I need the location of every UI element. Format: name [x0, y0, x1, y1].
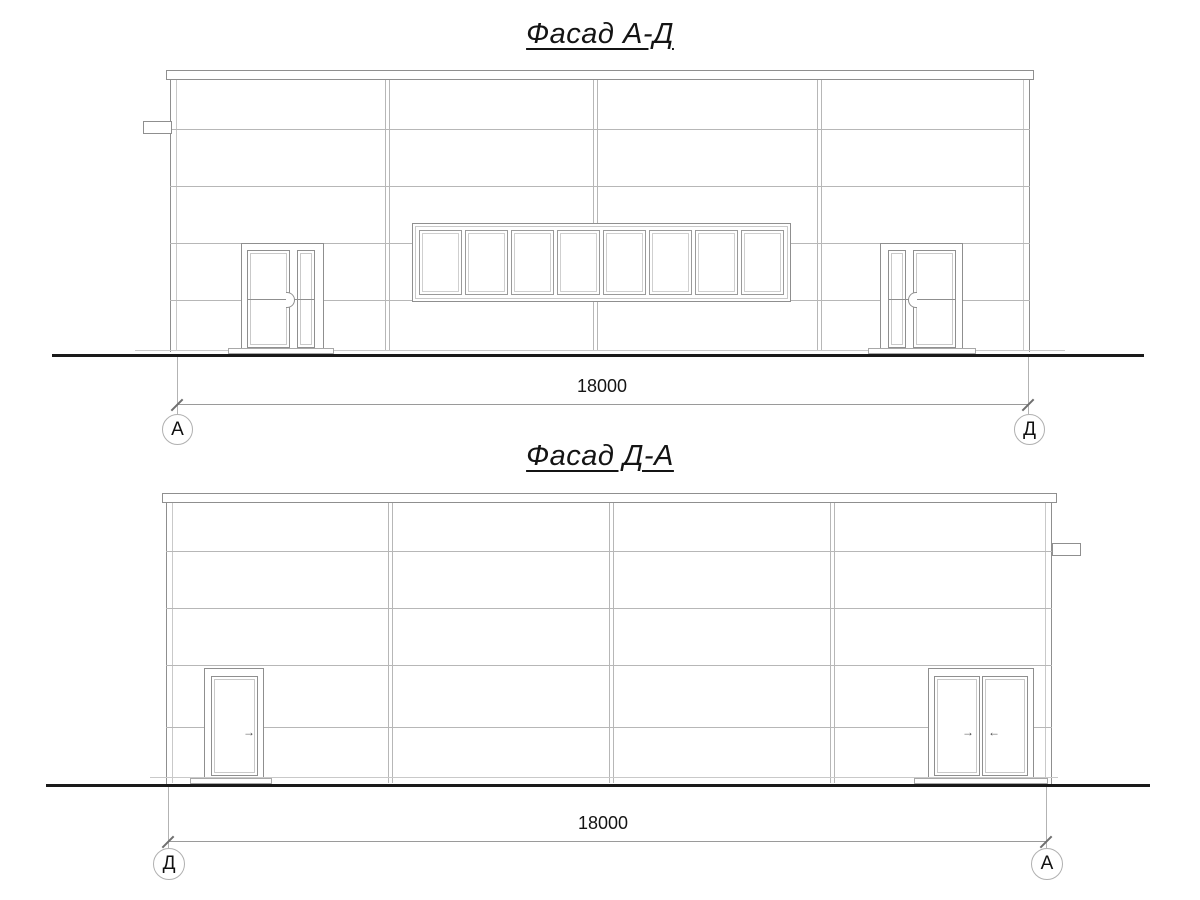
ground-line [46, 784, 1150, 787]
dimension-line [168, 841, 1046, 842]
panel-joint-line [170, 129, 1030, 130]
panel-joint-line [963, 300, 1030, 301]
corner-column-line [176, 80, 177, 351]
column-joint-line [609, 503, 610, 783]
axis-label: Д [1023, 419, 1036, 441]
panel-joint-line [166, 727, 204, 728]
axis-label: Д [163, 853, 176, 875]
corner-column-line [1045, 503, 1046, 783]
column-joint-line [593, 302, 594, 351]
column-joint-line [597, 302, 598, 351]
corner-column-line [172, 503, 173, 783]
dimension-line [177, 404, 1028, 405]
column-joint-line [817, 80, 818, 351]
panel-joint-line [264, 727, 928, 728]
window-band-panes [419, 230, 784, 295]
parapet-cap [166, 70, 1034, 80]
left-door-midrail [247, 299, 315, 300]
door-swing-arrow-icon: ← [983, 727, 1005, 737]
column-joint-line [389, 80, 390, 351]
window-pane [419, 230, 462, 295]
parapet-cap [162, 493, 1057, 503]
corner-column-line [1023, 80, 1024, 351]
window-pane [603, 230, 646, 295]
column-joint-line [834, 503, 835, 783]
door-swing-arrow-icon: → [238, 727, 260, 737]
panel-joint-line [170, 243, 241, 244]
panel-joint-line [1034, 727, 1052, 728]
column-joint-line [597, 80, 598, 223]
window-pane [465, 230, 508, 295]
panel-joint-line [324, 243, 412, 244]
column-joint-line [593, 80, 594, 223]
panel-joint-line [963, 243, 1030, 244]
panel-joint-line [324, 300, 412, 301]
column-joint-line [388, 503, 389, 783]
panel-joint-line [791, 243, 880, 244]
window-pane [695, 230, 738, 295]
ground-line [52, 354, 1144, 357]
door-swing-arrow-icon: → [957, 727, 979, 737]
facade-ad-title: Фасад А-Д [0, 18, 1200, 51]
window-pane [649, 230, 692, 295]
panel-joint-line [170, 186, 1030, 187]
window-pane [741, 230, 784, 295]
axis-label: А [1041, 853, 1054, 875]
dimension-value: 18000 [543, 813, 663, 834]
window-pane [557, 230, 600, 295]
column-joint-line [613, 503, 614, 783]
axis-marker-d: Д [153, 848, 185, 880]
column-joint-line [385, 80, 386, 351]
axis-label: А [171, 419, 184, 441]
gutter-outlet [1052, 543, 1081, 556]
column-joint-line [830, 503, 831, 783]
drawing-sheet: Фасад А-Д [0, 0, 1200, 900]
door-handle-icon [908, 292, 917, 308]
panel-joint-line [791, 300, 880, 301]
column-joint-line [821, 80, 822, 351]
axis-marker-a: А [1031, 848, 1063, 880]
column-joint-line [392, 503, 393, 783]
right-door-midrail [888, 299, 956, 300]
facade-da-title: Фасад Д-А [0, 440, 1200, 473]
window-pane [511, 230, 554, 295]
gutter-outlet [143, 121, 172, 134]
dimension-value: 18000 [542, 376, 662, 397]
panel-joint-line [170, 300, 241, 301]
